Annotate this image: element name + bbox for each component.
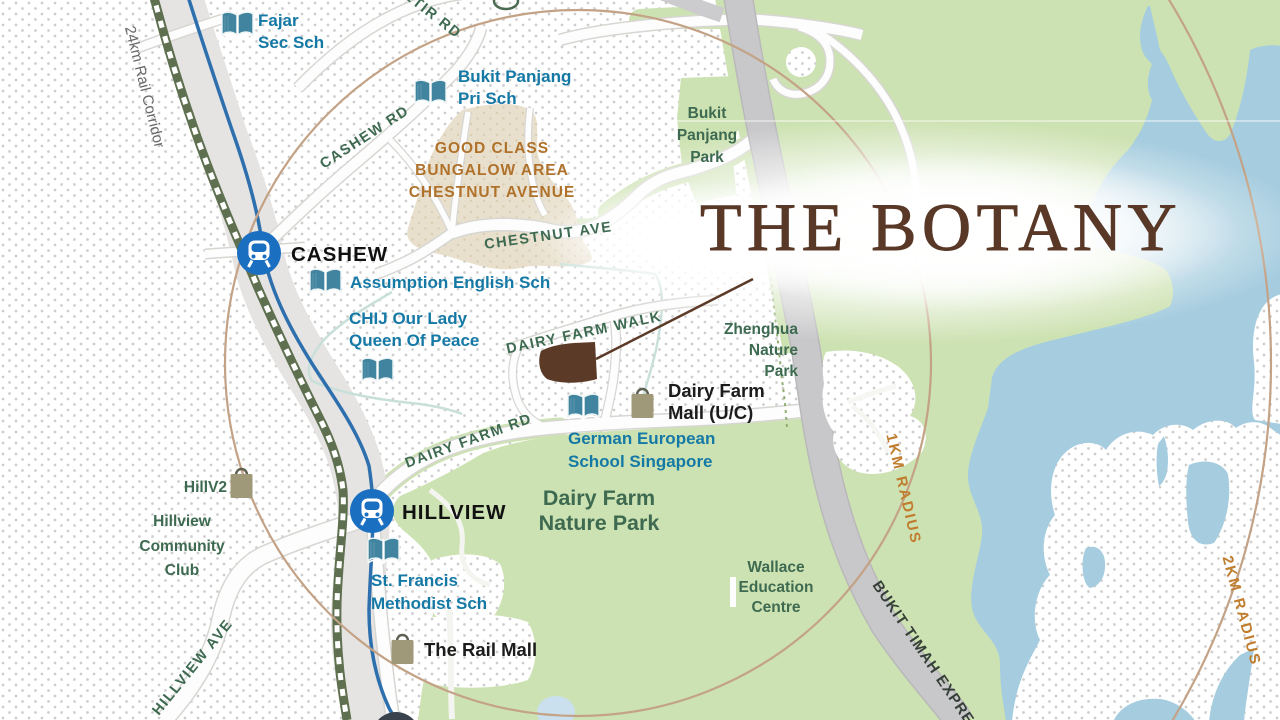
svg-text:Fajar: Fajar (258, 11, 299, 30)
svg-text:German European: German European (568, 429, 715, 448)
svg-text:Centre: Centre (751, 599, 800, 616)
svg-text:HillV2: HillV2 (184, 479, 227, 496)
svg-text:BUNGALOW AREA: BUNGALOW AREA (415, 162, 569, 179)
svg-text:The Rail Mall: The Rail Mall (424, 639, 537, 660)
svg-text:Hillview: Hillview (153, 513, 212, 530)
svg-text:Community: Community (139, 538, 225, 555)
svg-text:Club: Club (165, 562, 199, 579)
svg-text:Nature Park: Nature Park (539, 511, 660, 535)
svg-text:Panjang: Panjang (677, 127, 737, 144)
svg-text:Zhenghua: Zhenghua (724, 321, 798, 338)
svg-text:Bukit Panjang: Bukit Panjang (458, 67, 571, 86)
svg-text:Nature: Nature (749, 342, 798, 359)
svg-text:GOOD CLASS: GOOD CLASS (435, 140, 549, 157)
svg-text:School Singapore: School Singapore (568, 452, 713, 471)
svg-text:Dairy Farm: Dairy Farm (543, 486, 655, 510)
svg-text:Education: Education (739, 579, 814, 596)
svg-text:CHIJ Our Lady: CHIJ Our Lady (349, 309, 468, 328)
svg-text:Methodist Sch: Methodist Sch (371, 594, 487, 613)
svg-text:Bukit: Bukit (688, 105, 727, 122)
svg-text:Pri Sch: Pri Sch (458, 89, 517, 108)
svg-text:Sec Sch: Sec Sch (258, 33, 324, 52)
svg-text:HILLVIEW: HILLVIEW (402, 501, 506, 524)
svg-text:Assumption English Sch: Assumption English Sch (350, 273, 550, 292)
svg-text:Queen Of Peace: Queen Of Peace (349, 331, 479, 350)
svg-text:Wallace: Wallace (747, 559, 805, 576)
svg-text:CHESTNUT AVENUE: CHESTNUT AVENUE (409, 184, 576, 201)
svg-text:St. Francis: St. Francis (371, 571, 458, 590)
svg-text:THE BOTANY: THE BOTANY (700, 189, 1182, 265)
svg-text:Mall (U/C): Mall (U/C) (668, 402, 753, 423)
svg-text:Dairy Farm: Dairy Farm (668, 380, 765, 401)
svg-text:Park: Park (690, 149, 724, 166)
svg-text:Park: Park (764, 363, 798, 380)
svg-text:CASHEW: CASHEW (291, 243, 388, 266)
